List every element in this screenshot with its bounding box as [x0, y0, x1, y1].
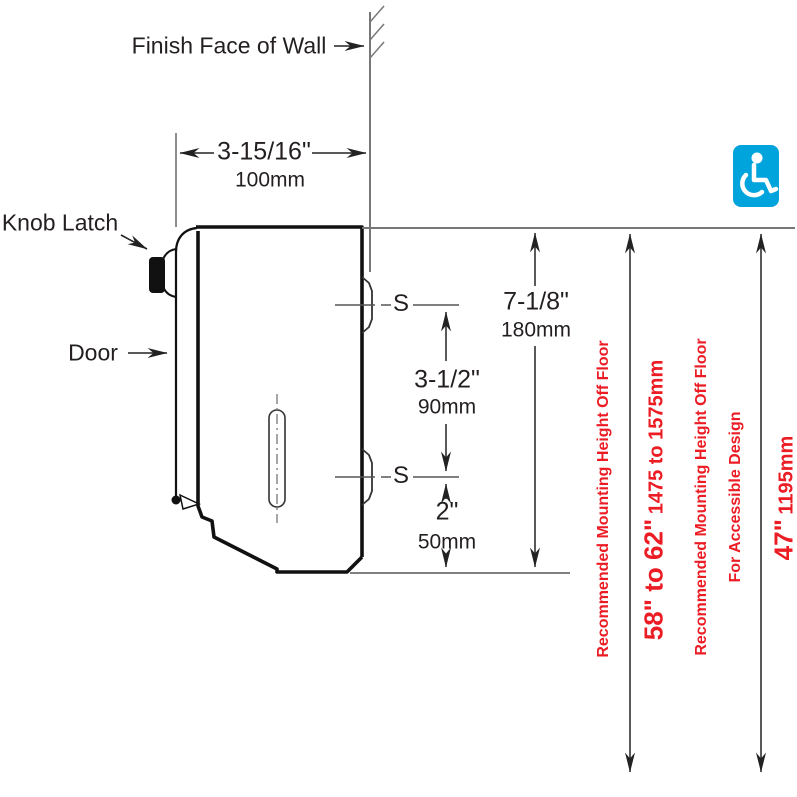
door-hinge-wedge — [180, 495, 199, 509]
standard-height-mm: 1475 to 1575mm — [646, 360, 668, 515]
accessible-height-note-line2: For Accessible Design — [719, 338, 753, 655]
door-panel — [176, 228, 197, 496]
screw-marker-upper: S — [393, 292, 409, 316]
standard-height-values: 58" to 62" 1475 to 1575mm — [637, 360, 676, 640]
door-label: Door — [68, 342, 118, 365]
knob-latch-label: Knob Latch — [2, 212, 118, 235]
accessible-height-mm: 1195mm — [776, 436, 797, 515]
line-art — [0, 0, 797, 797]
mounting-diagram-canvas: { "labels": { "finish_face": "Finish Fac… — [0, 0, 797, 797]
knob-latch-arrow — [121, 235, 147, 249]
bottom-dimension-mm: 50mm — [418, 532, 476, 553]
wheelchair-accessibility-icon — [733, 145, 779, 207]
depth-dimension-mm: 100mm — [235, 170, 305, 191]
screw-marker-lower: S — [393, 464, 409, 488]
offset-dimension-inches: 7-1/8" — [503, 290, 569, 315]
wall-hatch-marks — [370, 6, 384, 58]
wall-line — [370, 6, 384, 272]
depth-dimension-inches: 3-15/16" — [217, 140, 311, 165]
offset-dimension-mm: 180mm — [501, 320, 571, 341]
accessible-height-values: 47" 1195mm — [767, 436, 797, 561]
standard-height-inches: 58" to 62" — [639, 519, 669, 640]
spacing-dimension-inches: 3-1/2" — [414, 368, 480, 393]
door-hinge-dot — [172, 496, 181, 505]
spacing-dimension-mm: 90mm — [418, 397, 476, 418]
dispenser-outline — [196, 227, 362, 572]
accessible-height-note-line1: Recommended Mounting Height Off Floor — [685, 338, 719, 655]
door-slot — [269, 394, 285, 523]
accessible-height-note: Recommended Mounting Height Off Floor Fo… — [685, 338, 753, 655]
knob-latch-shape — [149, 249, 176, 297]
standard-height-note: Recommended Mounting Height Off Floor — [587, 340, 621, 657]
bottom-dimension-inches: 2" — [436, 500, 459, 525]
accessible-height-inches: 47" — [769, 519, 797, 560]
finish-face-of-wall-label: Finish Face of Wall — [132, 35, 327, 58]
